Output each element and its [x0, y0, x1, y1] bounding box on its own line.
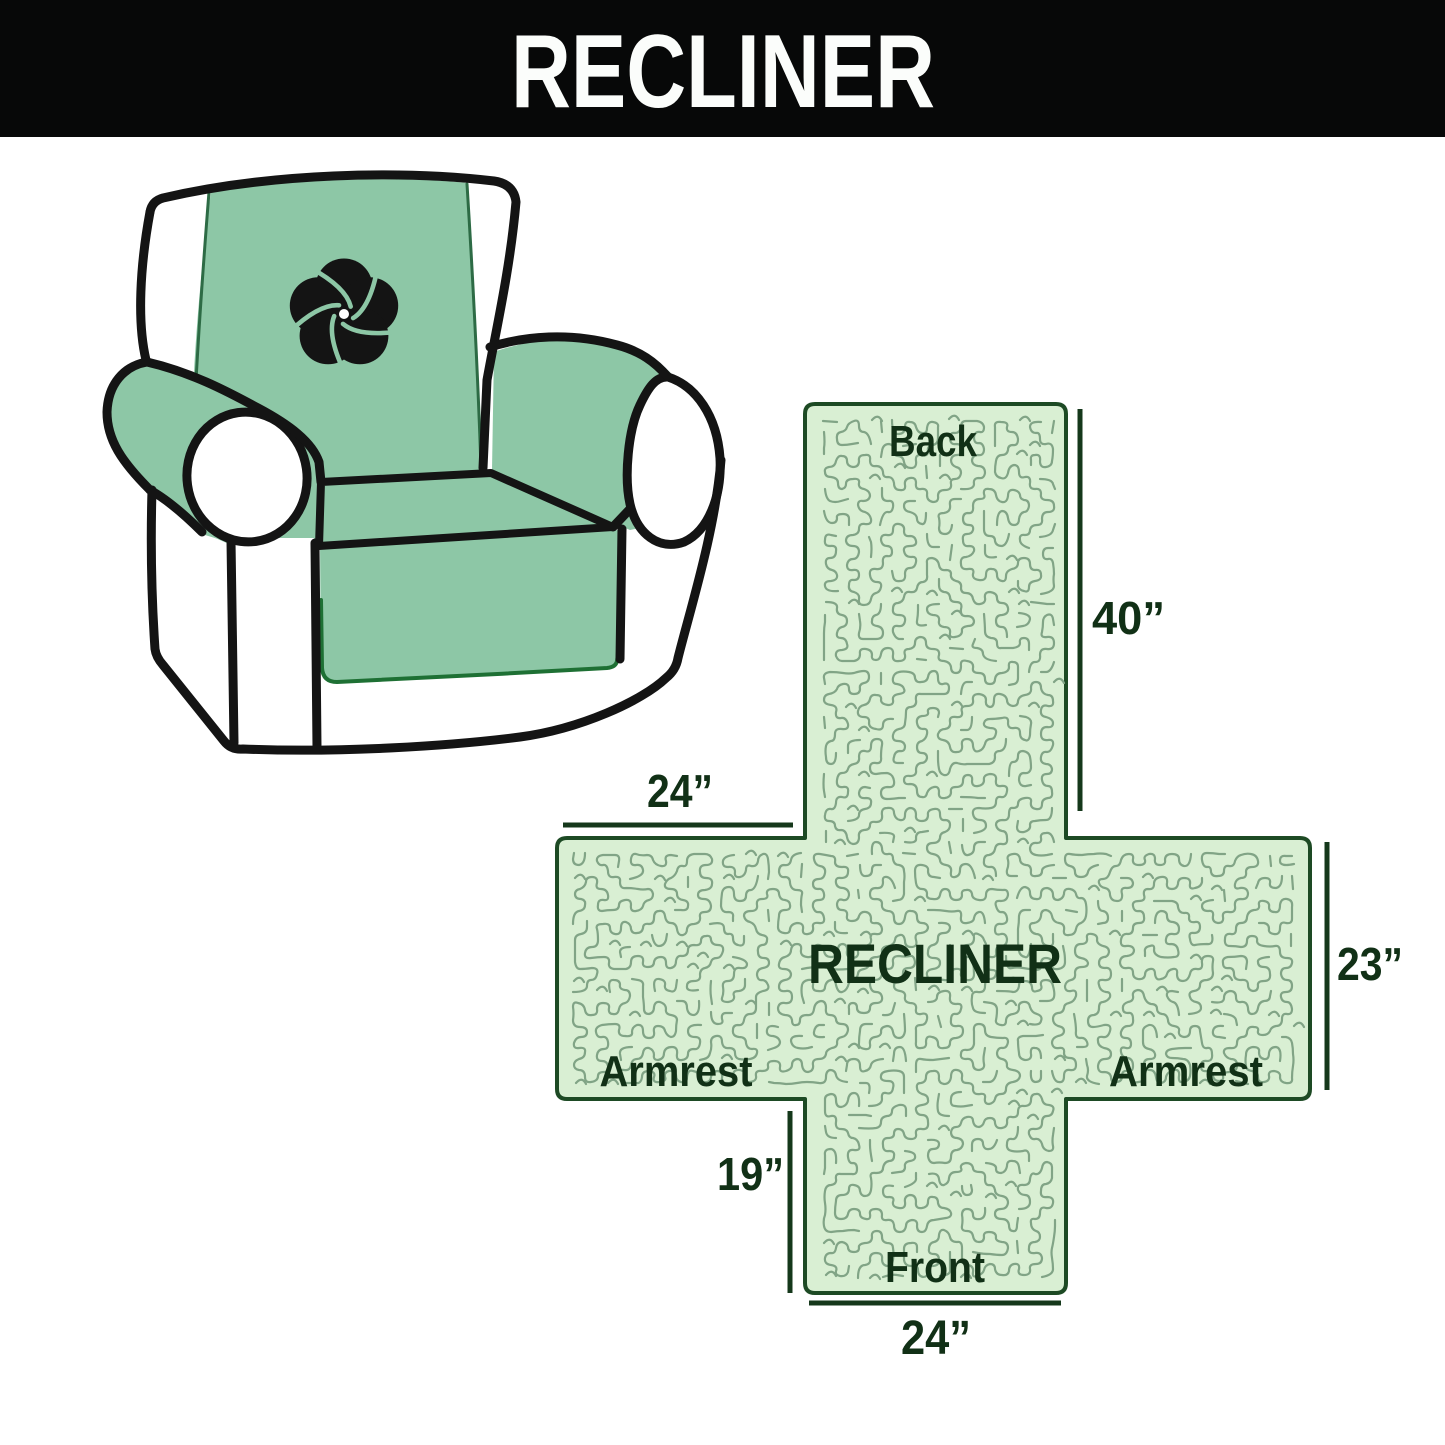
svg-text:24”: 24” [647, 765, 713, 817]
svg-text:RECLINER: RECLINER [511, 14, 935, 130]
svg-text:Back: Back [889, 417, 977, 466]
svg-text:23”: 23” [1337, 938, 1403, 990]
svg-text:RECLINER: RECLINER [808, 932, 1062, 995]
svg-text:19”: 19” [717, 1148, 784, 1200]
svg-text:24”: 24” [901, 1312, 971, 1365]
svg-text:Front: Front [885, 1243, 985, 1292]
svg-text:Armrest: Armrest [600, 1047, 753, 1096]
svg-text:Armrest: Armrest [1109, 1047, 1263, 1096]
svg-text:40”: 40” [1092, 592, 1165, 644]
